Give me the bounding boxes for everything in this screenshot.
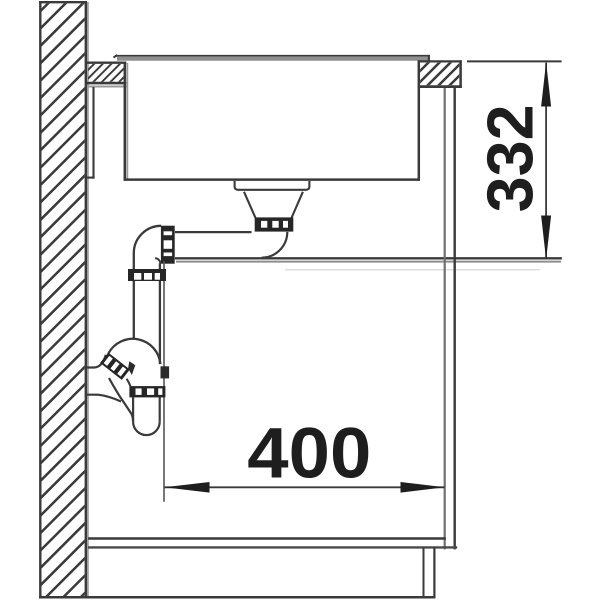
svg-text:400: 400 — [247, 414, 371, 494]
svg-text:332: 332 — [474, 104, 547, 212]
